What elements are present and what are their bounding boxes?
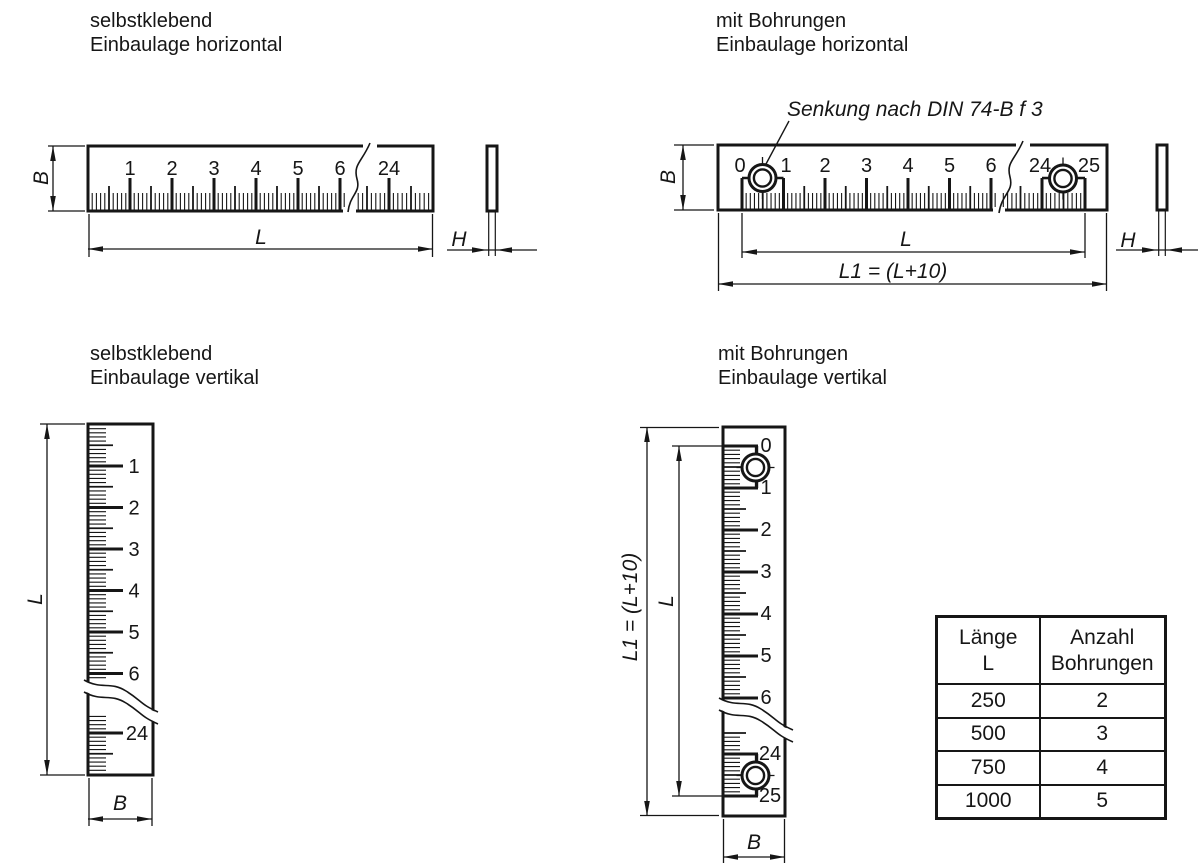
scale-number: 2 <box>128 498 139 520</box>
dim-label-L1: L1 = (L+10) <box>619 553 642 662</box>
dimension-arrow <box>137 816 152 822</box>
cell-hole-count: 3 <box>1040 718 1166 752</box>
dimension-arrow <box>644 801 650 816</box>
dimension-arrow <box>1070 249 1085 255</box>
scale-number: 4 <box>902 155 913 177</box>
cell-hole-count: 2 <box>1040 684 1166 718</box>
dimension-arrow <box>1167 247 1182 253</box>
dimension-arrow <box>680 145 686 160</box>
dimension-arrow <box>676 446 682 461</box>
scale-number: 4 <box>760 603 771 625</box>
dimension-arrow <box>88 816 103 822</box>
cell-length: 1000 <box>937 785 1040 819</box>
table-header-holes: Anzahl Bohrungen <box>1040 617 1166 685</box>
dimension-arrow <box>1092 281 1107 287</box>
countersink-annotation: Senkung nach DIN 74-B f 3 <box>787 98 1043 121</box>
scale-number: 3 <box>760 561 771 583</box>
ruler-vertical-adhesive-geometry: 12345624 <box>40 424 158 826</box>
scale-number: 6 <box>760 687 771 709</box>
dimension-arrow <box>723 854 738 860</box>
cell-hole-count: 4 <box>1040 751 1166 785</box>
dim-label-B: B <box>747 831 761 854</box>
cell-length: 250 <box>937 684 1040 718</box>
dim-label-H: H <box>1120 229 1136 252</box>
scale-number: 6 <box>334 158 345 180</box>
break-gap <box>343 207 356 215</box>
table-header-length: Länge L <box>937 617 1040 685</box>
dimension-arrow <box>44 760 50 775</box>
scale-number: 5 <box>128 622 139 644</box>
cell-length: 500 <box>937 718 1040 752</box>
scale-number: 24 <box>126 723 148 745</box>
scale-number: 4 <box>128 581 139 603</box>
scale-number: 24 <box>759 743 781 765</box>
dim-label-L: L <box>24 593 47 605</box>
scale-number: 2 <box>819 155 830 177</box>
dimension-arrow <box>50 196 56 211</box>
table-row: 5003 <box>937 718 1166 752</box>
dimension-arrow <box>497 247 512 253</box>
scale-number: 3 <box>128 539 139 561</box>
header-line: Anzahl <box>1070 626 1134 649</box>
table-row: 7504 <box>937 751 1166 785</box>
dim-label-L1: L1 = (L+10) <box>839 260 948 283</box>
scale-number: 25 <box>1078 155 1100 177</box>
dimension-arrow <box>680 195 686 210</box>
dimension-arrow <box>44 424 50 439</box>
scale-number: 4 <box>250 158 261 180</box>
dim-label-L: L <box>900 228 912 251</box>
dim-label-B: B <box>113 792 127 815</box>
dim-label-L: L <box>255 226 267 249</box>
scale-number: 3 <box>861 155 872 177</box>
header-line: L <box>982 652 994 675</box>
dim-label-B: B <box>657 170 680 184</box>
scale-number: 6 <box>128 664 139 686</box>
dimension-arrow <box>50 146 56 161</box>
scale-number: 6 <box>985 155 996 177</box>
dimension-arrow <box>770 854 785 860</box>
header-line: Bohrungen <box>1051 652 1154 675</box>
dimension-arrow <box>676 781 682 796</box>
scale-number: 5 <box>944 155 955 177</box>
dimension-arrow <box>718 281 733 287</box>
scale-number: 25 <box>759 785 781 807</box>
table-row: 10005 <box>937 785 1166 819</box>
side-view <box>487 146 497 211</box>
ruler-vertical-drilled-geometry: 01234562425 <box>640 427 793 863</box>
technical-drawing-page: selbstklebend Einbaulage horizontal mit … <box>0 0 1200 868</box>
table-body: 25025003750410005 <box>937 684 1166 819</box>
ruler-vertical-adhesive: 12345624 L B <box>24 424 158 826</box>
cell-length: 750 <box>937 751 1040 785</box>
dimension-arrow <box>1142 247 1157 253</box>
scale-number: 5 <box>760 645 771 667</box>
scale-number: 3 <box>208 158 219 180</box>
drill-count-table: Länge L Anzahl Bohrungen 250250037504100… <box>935 615 1167 820</box>
dimension-arrow <box>644 427 650 442</box>
scale-number: 1 <box>780 155 791 177</box>
cell-hole-count: 5 <box>1040 785 1166 819</box>
scale-number: 2 <box>760 519 771 541</box>
dim-label-B: B <box>30 171 53 185</box>
dimension-arrow <box>418 246 433 252</box>
ruler-horizontal-adhesive: 12345624 B L H <box>30 143 537 258</box>
scale-number: 24 <box>1029 155 1051 177</box>
dimension-arrow <box>742 249 757 255</box>
scale-number: 1 <box>124 158 135 180</box>
scale-number: 24 <box>378 158 400 180</box>
dimension-arrow <box>88 246 103 252</box>
table-header-row: Länge L Anzahl Bohrungen <box>937 617 1166 685</box>
table-row: 2502 <box>937 684 1166 718</box>
dim-label-L: L <box>655 595 678 607</box>
dimension-arrow <box>472 247 487 253</box>
header-line: Länge <box>959 626 1017 649</box>
scale-number: 0 <box>760 435 771 457</box>
ruler-horizontal-drilled: 01234562425 B L L1 = (L+10) H Senkung na… <box>657 98 1198 291</box>
scale-number: 2 <box>166 158 177 180</box>
scale-number: 5 <box>292 158 303 180</box>
side-view <box>1157 145 1167 210</box>
scale-number: 1 <box>128 456 139 478</box>
ruler-vertical-drilled: 01234562425 L1 = (L+10) L B <box>619 427 793 863</box>
scale-number: 0 <box>734 155 745 177</box>
dim-label-H: H <box>451 228 467 251</box>
scale-number: 1 <box>760 477 771 499</box>
